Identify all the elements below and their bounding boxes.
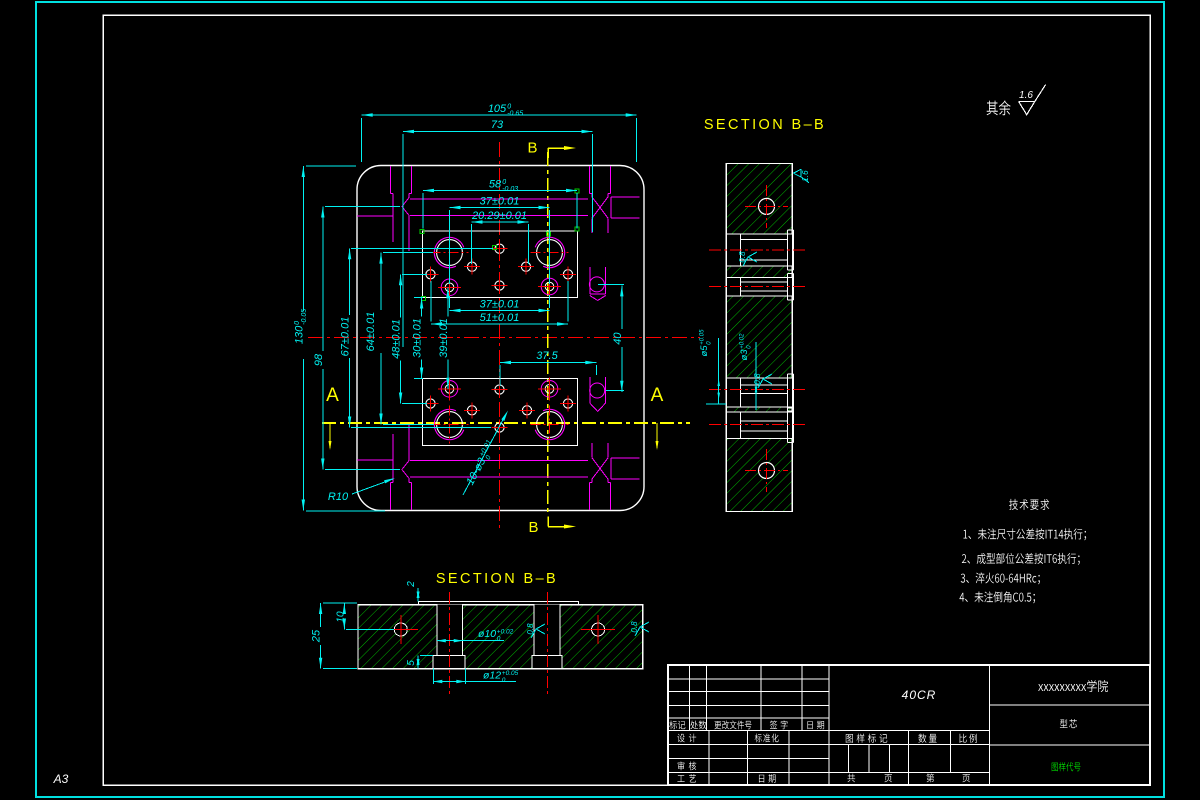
svg-text:39±0.01: 39±0.01 <box>438 318 450 358</box>
svg-text:98: 98 <box>313 353 325 366</box>
svg-text:ø3: ø3 <box>739 349 750 361</box>
svg-text:64±0.01: 64±0.01 <box>365 312 377 352</box>
svg-text:2: 2 <box>406 581 417 588</box>
svg-text:+0.05: +0.05 <box>700 329 706 345</box>
svg-text:ø5: ø5 <box>699 345 710 357</box>
svg-text:0: 0 <box>497 636 501 643</box>
svg-text:58: 58 <box>489 179 502 191</box>
svg-text:+0.02: +0.02 <box>740 333 746 349</box>
svg-text:0: 0 <box>507 104 511 111</box>
svg-text:37.5: 37.5 <box>536 350 558 362</box>
svg-text:B: B <box>527 140 537 157</box>
svg-text:130: 130 <box>293 325 305 344</box>
svg-text:SECTION B–B: SECTION B–B <box>704 117 826 133</box>
svg-text:105: 105 <box>488 103 507 115</box>
svg-text:+0.02: +0.02 <box>497 629 514 636</box>
svg-text:40CR: 40CR <box>902 688 937 702</box>
svg-text:0.8: 0.8 <box>526 623 535 635</box>
svg-text:48±0.01: 48±0.01 <box>391 319 403 359</box>
svg-text:B: B <box>528 519 538 536</box>
svg-text:0.8: 0.8 <box>753 373 762 385</box>
svg-text:20.29±0.01: 20.29±0.01 <box>471 210 527 222</box>
svg-text:51±0.01: 51±0.01 <box>480 312 520 324</box>
svg-text:ø12: ø12 <box>483 670 501 682</box>
svg-text:0.8: 0.8 <box>630 621 639 633</box>
svg-text:A3: A3 <box>53 772 69 786</box>
svg-text:73: 73 <box>491 119 504 131</box>
svg-text:0: 0 <box>502 677 506 684</box>
svg-text:A: A <box>651 385 664 406</box>
svg-text:SECTION B–B: SECTION B–B <box>436 571 558 587</box>
svg-text:+0.05: +0.05 <box>502 670 519 677</box>
svg-text:1.6: 1.6 <box>1019 90 1033 101</box>
svg-text:-0.65: -0.65 <box>507 111 523 118</box>
svg-text:37±0.01: 37±0.01 <box>480 196 520 208</box>
svg-text:0.8: 0.8 <box>738 251 747 263</box>
svg-text:25: 25 <box>311 629 323 643</box>
svg-text:R10: R10 <box>328 491 349 503</box>
svg-text:5: 5 <box>406 660 417 666</box>
svg-text:-0.03: -0.03 <box>502 186 518 193</box>
svg-text:ø10: ø10 <box>478 628 496 640</box>
svg-text:67±0.01: 67±0.01 <box>340 317 352 357</box>
svg-text:A: A <box>326 385 339 406</box>
svg-text:-0.05: -0.05 <box>301 309 308 325</box>
svg-text:40: 40 <box>612 332 624 345</box>
svg-text:10: 10 <box>335 611 346 623</box>
svg-text:37±0.01: 37±0.01 <box>480 299 520 311</box>
svg-text:30±0.01: 30±0.01 <box>412 318 424 358</box>
svg-text:1.6: 1.6 <box>801 170 810 182</box>
svg-text:0: 0 <box>502 179 506 186</box>
svg-text:0: 0 <box>294 321 301 325</box>
